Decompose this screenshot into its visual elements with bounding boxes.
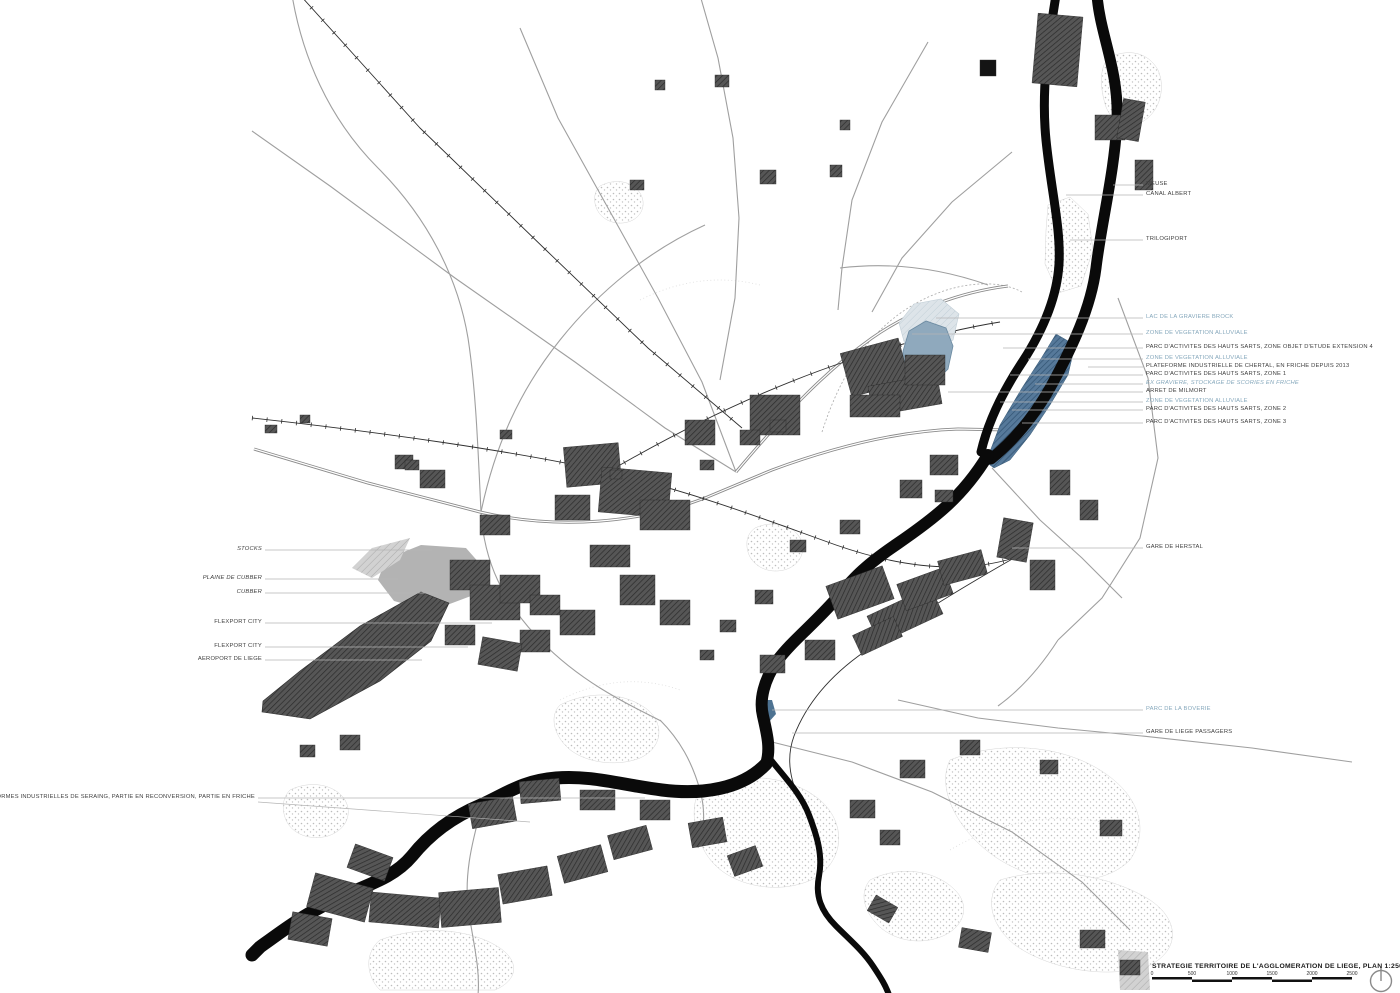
building-block bbox=[610, 470, 622, 479]
scale-bar-segment bbox=[1192, 980, 1232, 983]
building-block bbox=[850, 800, 875, 818]
scale-bar-number: 2000 bbox=[1306, 971, 1317, 977]
building-block bbox=[760, 655, 785, 673]
building-block bbox=[930, 455, 958, 475]
scale-bar-number: 500 bbox=[1188, 971, 1196, 977]
building-block bbox=[557, 845, 608, 884]
building-block bbox=[720, 620, 736, 632]
leader-lines-layer bbox=[258, 185, 1143, 822]
building-block bbox=[580, 790, 615, 810]
building-block bbox=[265, 425, 277, 433]
building-block bbox=[340, 735, 360, 750]
building-block bbox=[685, 420, 715, 445]
scale-bar-number: 0 bbox=[1151, 971, 1154, 977]
building-block bbox=[700, 650, 714, 660]
building-block bbox=[830, 165, 842, 177]
building-block bbox=[300, 415, 310, 423]
building-block bbox=[997, 518, 1033, 563]
building-block bbox=[300, 745, 315, 757]
title-block: STRATEGIE TERRITOIRE DE L'AGGLOMERATION … bbox=[1152, 963, 1392, 970]
north-arrow-icon bbox=[1371, 967, 1392, 992]
building-block bbox=[480, 515, 510, 535]
scale-bar-number: 1000 bbox=[1226, 971, 1237, 977]
building-block bbox=[790, 540, 806, 552]
building-block bbox=[958, 928, 991, 953]
building-block bbox=[1135, 160, 1153, 190]
airport-layer bbox=[262, 592, 449, 719]
building-block bbox=[905, 355, 945, 385]
building-block bbox=[900, 760, 925, 778]
building-block bbox=[590, 545, 630, 567]
scale-bar-graphic bbox=[1150, 971, 1362, 985]
building-block bbox=[715, 75, 729, 87]
scale-bar-segment bbox=[1232, 977, 1272, 980]
map-canvas bbox=[0, 0, 1400, 993]
scale-bar-number: 2500 bbox=[1346, 971, 1357, 977]
building-block bbox=[760, 170, 776, 184]
building-block bbox=[740, 430, 760, 445]
building-block bbox=[498, 866, 552, 904]
building-block bbox=[620, 575, 655, 605]
building-block bbox=[420, 470, 445, 488]
building-block bbox=[1032, 13, 1083, 87]
building-block bbox=[1080, 500, 1098, 520]
building-block bbox=[369, 892, 441, 928]
building-block bbox=[660, 600, 690, 625]
building-block bbox=[770, 420, 786, 432]
aeroport-de-liege-area bbox=[262, 592, 449, 719]
scale-bar: 05001000150020002500 bbox=[1150, 971, 1362, 985]
building-block bbox=[655, 80, 665, 90]
building-block bbox=[1040, 760, 1058, 774]
building-block bbox=[439, 887, 502, 927]
building-block bbox=[805, 640, 835, 660]
building-block bbox=[840, 120, 850, 130]
map-page: MEUSECANAL ALBERTTRILOGIPORTLAC DE LA GR… bbox=[0, 0, 1400, 993]
building-block bbox=[1050, 470, 1070, 495]
scale-bar-number: 1500 bbox=[1266, 971, 1277, 977]
building-block bbox=[347, 844, 393, 881]
building-block bbox=[288, 912, 332, 947]
scale-bar-segment bbox=[1152, 977, 1192, 980]
scale-bar-segment bbox=[1312, 977, 1352, 980]
building-block bbox=[520, 630, 550, 652]
building-block bbox=[530, 595, 560, 615]
building-block bbox=[840, 520, 860, 534]
building-block bbox=[850, 395, 900, 417]
building-block bbox=[935, 490, 953, 502]
building-block bbox=[640, 800, 670, 820]
building-block bbox=[555, 495, 590, 520]
building-block bbox=[1030, 560, 1055, 590]
building-block bbox=[607, 825, 652, 860]
building-block bbox=[938, 550, 988, 586]
building-block bbox=[880, 830, 900, 845]
building-block bbox=[478, 637, 522, 672]
building-block bbox=[755, 590, 773, 604]
building-block bbox=[700, 460, 714, 470]
building-block bbox=[1080, 930, 1105, 948]
building-block bbox=[519, 778, 561, 803]
building-block bbox=[500, 430, 512, 439]
map-title: STRATEGIE TERRITOIRE DE L'AGGLOMERATION … bbox=[1152, 963, 1392, 970]
building-block bbox=[630, 180, 644, 190]
building-block bbox=[640, 500, 690, 530]
building-block bbox=[560, 610, 595, 635]
building-block bbox=[960, 740, 980, 755]
building-block bbox=[445, 625, 475, 645]
building-block bbox=[405, 460, 419, 470]
building-block bbox=[980, 60, 996, 76]
building-block bbox=[1120, 960, 1140, 975]
scale-bar-segment bbox=[1272, 980, 1312, 983]
building-block bbox=[900, 480, 922, 498]
building-block bbox=[1100, 820, 1122, 836]
